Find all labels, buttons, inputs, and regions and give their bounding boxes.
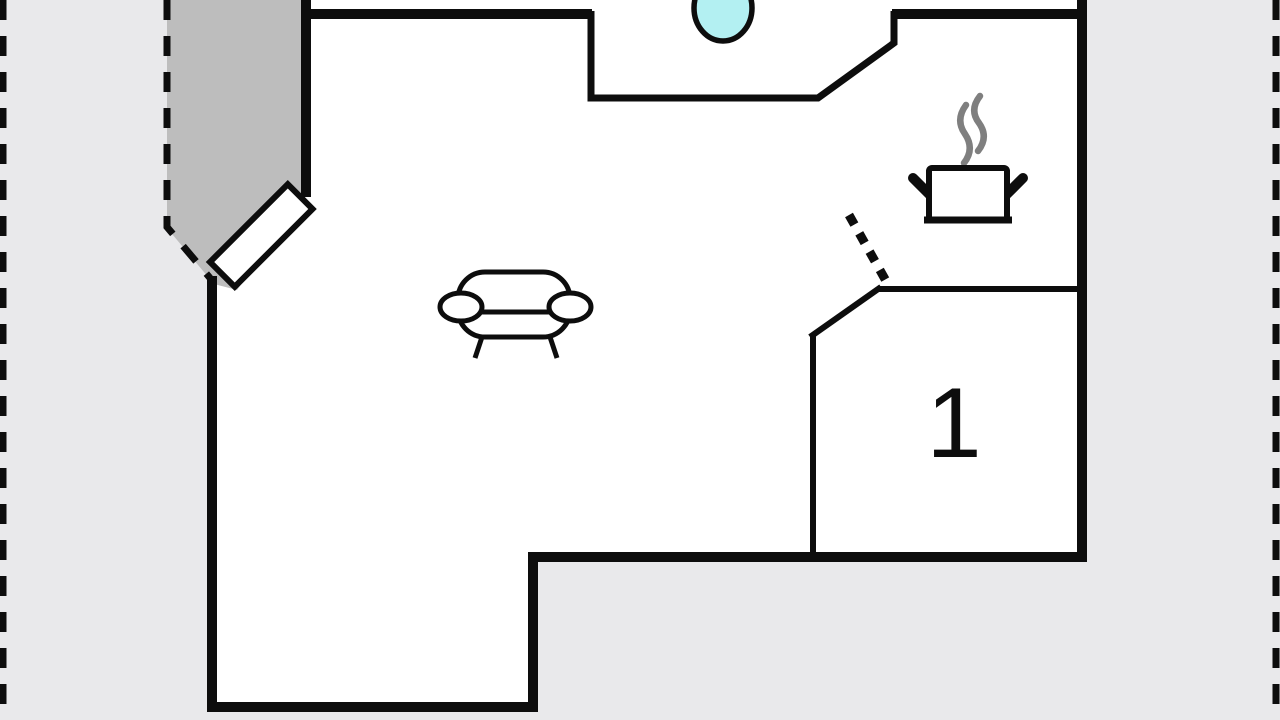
sink-icon <box>694 0 752 41</box>
sofa-armrest-left <box>440 293 482 321</box>
pot-body <box>929 168 1007 220</box>
floorplan-page: 1 <box>0 0 1280 720</box>
floorplan-canvas: 1 <box>0 0 1280 720</box>
sofa-armrest-right <box>549 293 591 321</box>
room-1-label: 1 <box>926 367 981 478</box>
